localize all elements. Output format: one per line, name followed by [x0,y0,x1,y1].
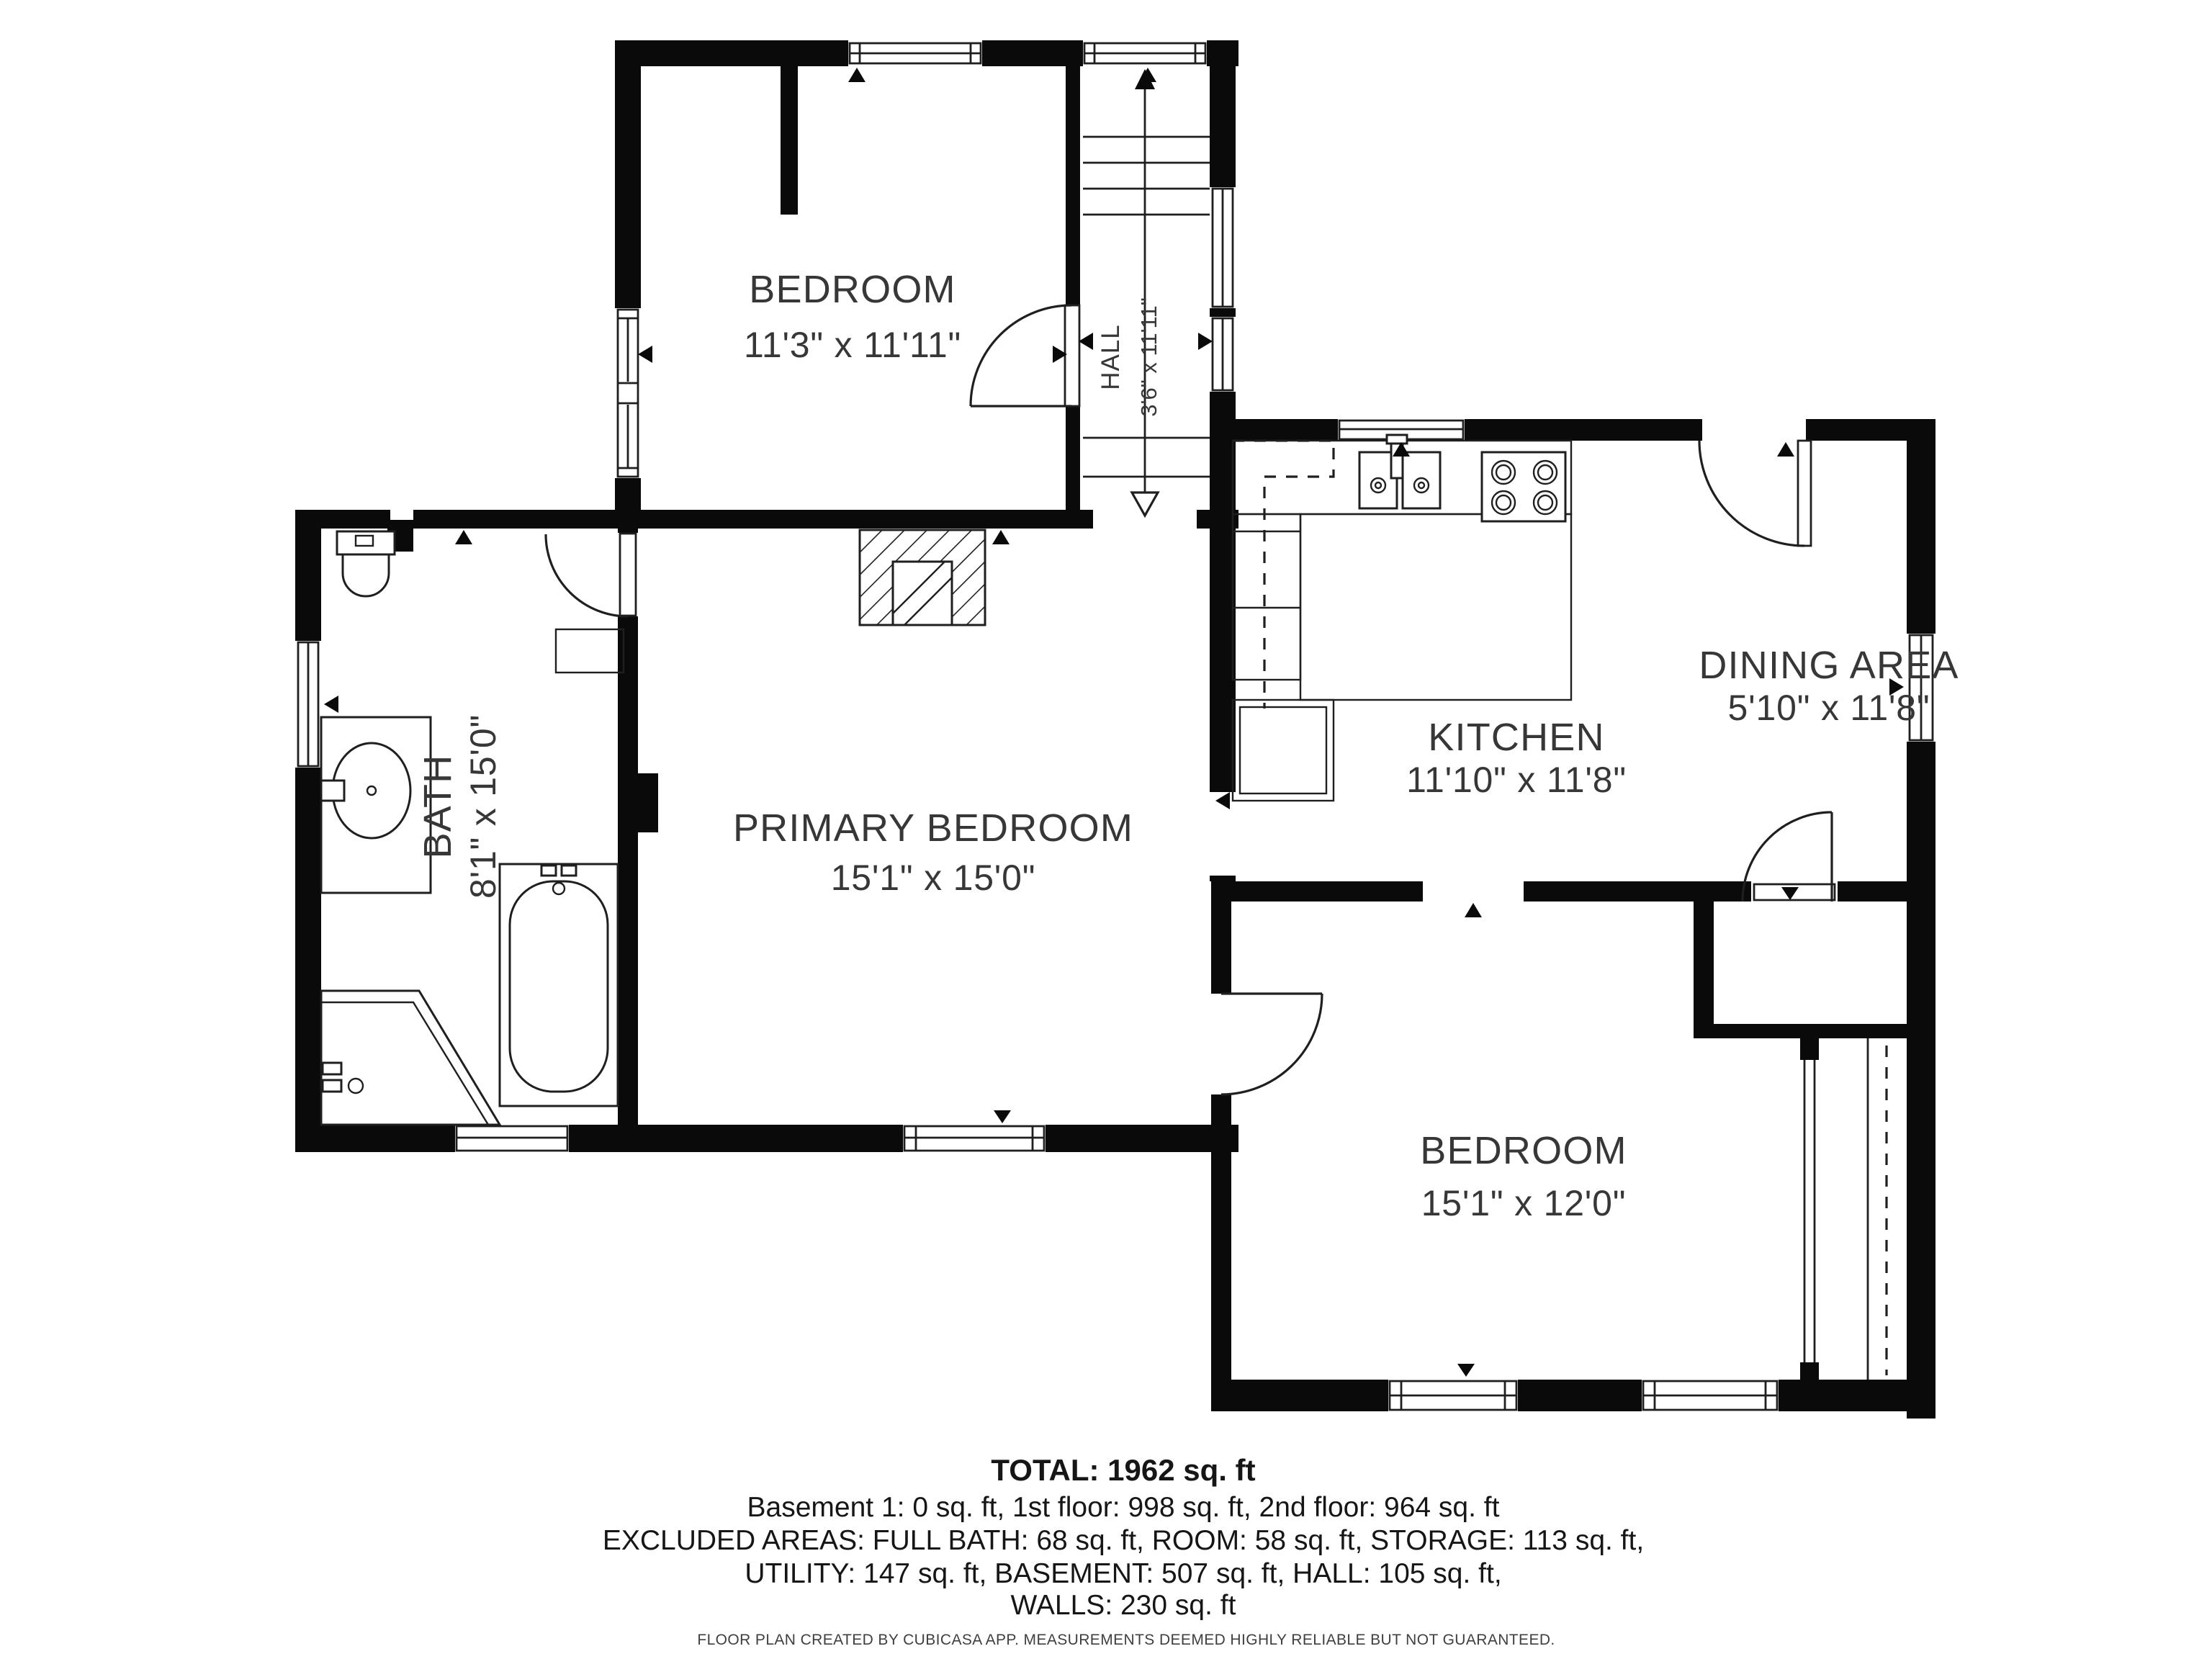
room-dims-bedroom-bottom: 15'1" x 12'0" [1421,1183,1627,1223]
windows [298,43,1933,1410]
wall-openings [295,40,1935,1411]
room-dims-hall: 3'6" x 11'11" [1136,297,1161,416]
bath-cabinet [556,629,624,673]
marker-up [455,530,472,544]
wall-left-outer [295,510,321,1152]
room-label-bath: BATH [416,755,459,859]
room-labels: BEDROOM 11'3" x 11'11" HALL 3'6" x 11'11… [416,268,1959,1223]
wall-bedroom2-left [1211,881,1231,1411]
wall-bottom-outer [1211,1380,1935,1411]
upper-cabinets-dashed [1233,441,1334,709]
wall-bottom-left-block [295,1125,1238,1152]
door-bath [546,534,636,616]
stove [1482,452,1565,521]
door-gap [1423,881,1524,902]
door-gap [1702,419,1806,441]
room-dims-dining: 5'10" x 11'8" [1728,688,1930,728]
counter-left-run [1233,514,1300,680]
bathtub [500,864,618,1106]
floor-plan: BEDROOM 11'3" x 11'11" HALL 3'6" x 11'11… [0,0,2212,1659]
wall-storage-bottom [1694,1024,1935,1038]
wall-bedroom-hall [1066,66,1080,510]
sliding-closet [1804,1038,1887,1380]
footer-disclaimer: FLOOR PLAN CREATED BY CUBICASA APP. MEAS… [697,1632,1555,1648]
marker-left [324,696,338,713]
dishwasher [1233,700,1334,801]
door-primary-bedroom2 [1221,994,1322,1094]
fireplace [860,530,985,625]
room-dims-bath: 8'1" x 15'0" [463,714,503,899]
wall-pillar [621,773,658,832]
marker-up [1777,442,1794,457]
room-dims-primary: 15'1" x 15'0" [831,858,1036,898]
staircase [1083,69,1210,516]
summary-excluded-3: WALLS: 230 sq. ft [1011,1590,1236,1621]
summary-total: TOTAL: 1962 sq. ft [991,1453,1255,1487]
marker-left [1079,333,1093,350]
marker-up [1139,68,1156,82]
opening-markers [324,68,1904,1377]
summary-floors: Basement 1: 0 sq. ft, 1st floor: 998 sq.… [747,1492,1500,1523]
closet-cap-bottom [1800,1362,1819,1385]
corner-shower [321,991,500,1125]
summary-excluded-2: UTILITY: 147 sq. ft, BASEMENT: 507 sq. f… [745,1558,1501,1589]
room-label-kitchen: KITCHEN [1428,716,1604,759]
room-label-dining: DINING AREA [1699,644,1959,687]
wall-right-outer [1907,419,1935,1419]
room-label-bedroom-bottom: BEDROOM [1420,1129,1627,1172]
room-label-primary: PRIMARY BEDROOM [733,806,1133,850]
wall-bedroom-stub [781,66,798,215]
summary-block: TOTAL: 1962 sq. ft Basement 1: 0 sq. ft,… [603,1453,1644,1648]
marker-up [992,530,1010,544]
walls [295,40,1935,1419]
chimney-notch [390,510,413,520]
room-label-hall: HALL [1097,324,1125,390]
closet-cap-top [1800,1037,1819,1060]
marker-down [1457,1364,1475,1377]
marker-down [994,1110,1011,1123]
room-dims-bedroom-top: 11'3" x 11'11" [744,325,961,365]
door-gap [1211,994,1231,1094]
counter-peninsula [1300,514,1571,700]
vanity-sink [321,717,431,893]
summary-excluded-1: EXCLUDED AREAS: FULL BATH: 68 sq. ft, RO… [603,1525,1644,1556]
room-label-bedroom-top: BEDROOM [749,268,956,311]
wall-right-hall-kitchen [1210,40,1236,881]
marker-up [848,68,866,82]
room-dims-kitchen: 11'10" x 11'8" [1406,760,1627,800]
toilet [337,531,395,596]
marker-up [1465,903,1482,917]
wall-storage-left [1694,902,1714,1038]
